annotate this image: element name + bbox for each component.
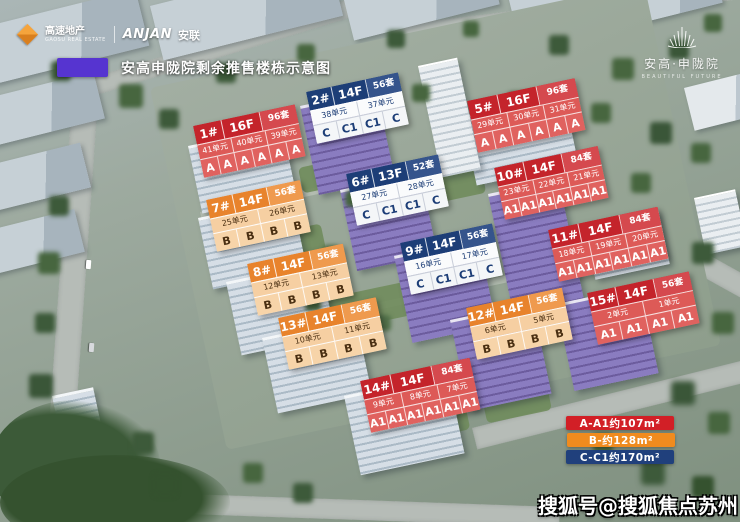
project-name-sub: BEAUTIFUL FUTURE <box>630 74 734 80</box>
unit-type-cell: A <box>286 139 306 160</box>
anjan-brand-name: ANJAN <box>123 27 172 42</box>
unit-type-cell: A1 <box>647 241 668 262</box>
legend-item-b: B-约128m² <box>567 433 675 447</box>
project-brand: 安高·申陇院 BEAUTIFUL FUTURE <box>630 26 734 80</box>
car-icon <box>89 343 95 352</box>
gaosu-brand-sub: GAOSU REAL ESTATE <box>45 37 106 43</box>
watermark: 搜狐号@搜狐焦点苏州站 <box>538 490 740 522</box>
site-plan: 高速地产 GAOSU REAL ESTATE ANJAN 安联 安高申陇院剩余推… <box>0 0 740 522</box>
title-logo-badge <box>57 58 108 77</box>
brand-divider <box>114 26 115 43</box>
anjan-brand-cn: 安联 <box>178 27 200 43</box>
crown-icon <box>664 26 700 48</box>
project-name: 安高·申陇院 <box>630 55 734 72</box>
gaosu-brand-text: 高速地产 GAOSU REAL ESTATE <box>45 26 106 43</box>
building-icon <box>694 189 740 254</box>
page-title: 安高申陇院剩余推售楼栋示意图 <box>121 58 331 78</box>
unit-type-cell: A <box>565 112 586 133</box>
developer-brand: 高速地产 GAOSU REAL ESTATE ANJAN 安联 <box>16 26 200 43</box>
legend-item-c: C-C1约170m² <box>566 450 674 464</box>
gaosu-brand-name: 高速地产 <box>45 26 106 37</box>
unit-type-cell: A1 <box>588 180 608 201</box>
legend-item-a: A-A1约107m² <box>566 416 674 430</box>
car-icon <box>86 260 92 269</box>
trees-icon <box>0 0 2 2</box>
gaosu-logo-icon <box>17 24 38 45</box>
unit-type-cell: A1 <box>459 392 480 413</box>
